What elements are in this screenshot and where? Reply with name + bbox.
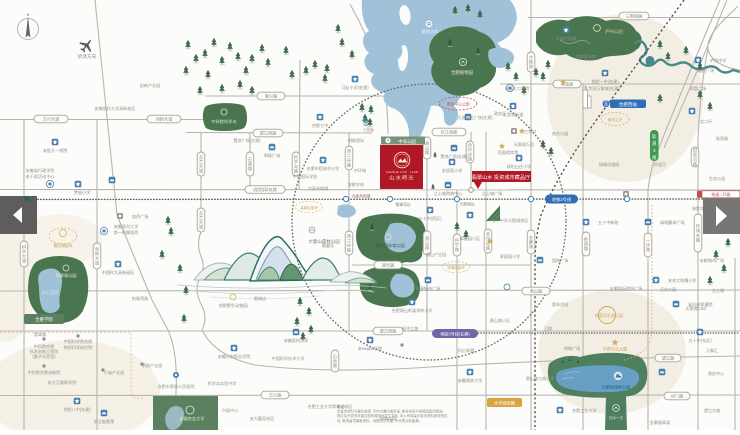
svg-text:明珠国际: 明珠国际 <box>348 137 364 143</box>
svg-text:祥源城市广场: 祥源城市广场 <box>416 285 441 291</box>
svg-text:大连万达广场(在建): 大连万达广场(在建) <box>457 114 493 120</box>
svg-text:山水時光: 山水時光 <box>389 174 415 182</box>
svg-text:置地广场(在建): 置地广场(在建) <box>440 153 468 159</box>
svg-text:庐阳中学: 庐阳中学 <box>710 57 726 63</box>
svg-text:高新区板块: 高新区板块 <box>300 205 318 210</box>
svg-text:力高共和城: 力高共和城 <box>352 194 371 199</box>
svg-text:万象汇: 万象汇 <box>706 347 718 353</box>
svg-text:科学岛实验中学: 科学岛实验中学 <box>208 380 237 386</box>
svg-text:地铁2号线: 地铁2号线 <box>552 196 572 203</box>
svg-text:合肥西站: 合肥西站 <box>619 101 638 108</box>
svg-text:中科院合肥创新院: 中科院合肥创新院 <box>28 369 61 375</box>
svg-text:翡翠湖公园: 翡翠湖公园 <box>56 272 77 279</box>
svg-text:融侨广场: 融侨广场 <box>698 67 714 73</box>
svg-text:潜山路与南二环: 潜山路与南二环 <box>526 375 555 381</box>
svg-text:柏堰湾路: 柏堰湾路 <box>132 295 148 301</box>
svg-text:备注:: 备注: <box>337 404 345 409</box>
svg-text:安医大一附院: 安医大一附院 <box>43 147 68 153</box>
svg-text:大学城商圈: 大学城商圈 <box>494 400 515 407</box>
svg-text:梦园小学: 梦园小学 <box>74 189 90 195</box>
svg-text:黄山路: 黄山路 <box>530 288 543 295</box>
svg-text:本宣传资料为要约邀请, 不作为要约或承诺, 相关内容不排除因: 本宣传资料为要约邀请, 不作为要约或承诺, 相关内容不排除因政府规划、 <box>337 409 446 414</box>
svg-text:机场方向: 机场方向 <box>78 53 97 60</box>
svg-text:(量子实验室): (量子实验室) <box>32 353 56 359</box>
svg-text:四里河生态公园: 四里河生态公园 <box>595 312 623 318</box>
svg-text:杏花公园: 杏花公园 <box>552 130 568 136</box>
svg-text:安居苑小学: 安居苑小学 <box>442 167 462 173</box>
svg-text:中国科学院合肥: 中国科学院合肥 <box>64 338 93 344</box>
svg-text:之心城广场: 之心城广场 <box>482 190 502 196</box>
svg-text:合肥一中(在建): 合肥一中(在建) <box>591 78 619 84</box>
svg-text:(规划)彩虹路: (规划)彩虹路 <box>253 186 278 193</box>
svg-text:方兴大道: 方兴大道 <box>43 116 61 123</box>
svg-text:天鹅湖万达: 天鹅湖万达 <box>514 141 534 147</box>
svg-text:财富广场: 财富广场 <box>690 85 706 91</box>
svg-text:老干部活动中心: 老干部活动中心 <box>26 173 55 179</box>
svg-text:中科院科学岛: 中科院科学岛 <box>211 118 236 125</box>
svg-text:翡翠山水 投资城市藏品厅: 翡翠山水 投资城市藏品厅 <box>472 173 531 181</box>
svg-text:合肥工业大学: 合肥工业大学 <box>572 407 597 413</box>
svg-text:安医大二附院: 安医大二附院 <box>505 85 530 91</box>
svg-text:黄山路小区: 黄山路小区 <box>490 317 510 323</box>
svg-text:合肥工业大学翡翠湖校区: 合肥工业大学翡翠湖校区 <box>307 403 352 409</box>
svg-text:创新大道: 创新大道 <box>156 116 174 123</box>
svg-text:望江路: 望江路 <box>662 355 675 362</box>
svg-text:蜀峰湾站: 蜀峰湾站 <box>395 202 410 207</box>
svg-text:望江西路: 望江西路 <box>260 130 278 137</box>
svg-text:安粮学府: 安粮学府 <box>348 181 364 187</box>
svg-text:兴园中心: 兴园中心 <box>222 407 238 413</box>
svg-text:奥林花园: 奥林花园 <box>552 301 568 307</box>
svg-text:创新产业园: 创新产业园 <box>140 82 160 88</box>
svg-text:安медиа学院: 安медиа学院 <box>358 345 382 351</box>
svg-text:庐州公园: 庐州公园 <box>605 28 623 35</box>
svg-text:政务区: 政务区 <box>494 110 506 116</box>
svg-text:望江东路: 望江东路 <box>704 407 720 413</box>
svg-text:天鹅湖站: 天鹅湖站 <box>459 202 474 207</box>
svg-text:望江西路: 望江西路 <box>380 328 398 335</box>
svg-text:规定及开发商未能控制的原因而发生变化, 本公司保留对宣传资料: 规定及开发商未能控制的原因而发生变化, 本公司保留对宣传资料修改的权 <box>337 413 448 418</box>
svg-text:绿地赢海广场: 绿地赢海广场 <box>660 219 685 225</box>
svg-text:复兴路: 复兴路 <box>265 93 278 100</box>
svg-text:合肥学院: 合肥学院 <box>35 316 53 323</box>
svg-text:汤王温泉: 汤王温泉 <box>42 289 60 296</box>
svg-text:北二环: 北二环 <box>700 118 712 124</box>
svg-text:轨: 轨 <box>652 133 657 140</box>
svg-text:琥珀山庄小学: 琥珀山庄小学 <box>507 163 532 169</box>
svg-text:五十中学天鹅湖校区: 五十中学天鹅湖校区 <box>492 217 529 223</box>
svg-text:临泉路: 临泉路 <box>716 135 728 141</box>
svg-text:道: 道 <box>652 140 657 147</box>
svg-text:安粮城市广场: 安粮城市广场 <box>700 257 725 263</box>
svg-text:奥体中心公园: 奥体中心公园 <box>447 102 470 107</box>
svg-text:百花公园: 百花公园 <box>660 286 676 292</box>
svg-text:线: 线 <box>652 154 657 160</box>
svg-text:中国科大高新园区: 中国科大高新园区 <box>102 269 135 275</box>
svg-text:三孝口: 三孝口 <box>524 128 536 134</box>
svg-text:中加国际学校: 中加国际学校 <box>293 173 318 179</box>
svg-text:翠庭园小学: 翠庭园小学 <box>500 253 520 259</box>
svg-text:大房郢水库: 大房郢水库 <box>576 53 596 59</box>
svg-text:天鹅湖CBD: 天鹅湖CBD <box>686 305 707 311</box>
svg-text:雷麻店: 雷麻店 <box>254 295 266 301</box>
svg-text:利, 敬请留意最新资料。地图为示意图, 不代表实际距离。: 利, 敬请留意最新资料。地图为示意图, 不代表实际距离。 <box>337 418 422 423</box>
svg-text:蜀峰湾体育公园: 蜀峰湾体育公园 <box>375 242 404 249</box>
svg-text:中国科学技术大学: 中国科学技术大学 <box>272 355 305 361</box>
svg-text:合肥七中: 合肥七中 <box>312 122 328 128</box>
svg-text:祖冲之路: 祖冲之路 <box>402 325 418 331</box>
svg-text:安徽医科大学高新校区: 安徽医科大学高新校区 <box>95 105 136 111</box>
svg-text:SHANHE LIVE · LAKE: SHANHE LIVE · LAKE <box>386 170 418 174</box>
svg-text:安大磬苑校区: 安大磬苑校区 <box>250 415 275 421</box>
svg-text:小庙产业园: 小庙产业园 <box>104 369 124 375</box>
svg-text:之心城购物中心: 之心城购物中心 <box>434 190 463 196</box>
svg-text:安徽农业大学: 安徽农业大学 <box>179 415 204 422</box>
svg-text:五十中(西区): 五十中(西区) <box>418 215 442 221</box>
svg-text:董铺水库: 董铺水库 <box>422 28 439 35</box>
svg-text:合肥市稻香村小学: 合肥市稻香村小学 <box>307 165 340 171</box>
svg-text:长江西路: 长江西路 <box>441 129 459 136</box>
svg-text:安农大附属小学: 安农大附属小学 <box>668 277 697 283</box>
svg-text:三国城路: 三国城路 <box>626 13 644 20</box>
svg-text:安徽建筑大学: 安徽建筑大学 <box>458 377 483 383</box>
svg-text:合肥市第四人民医院: 合肥市第四人民医院 <box>158 383 195 389</box>
svg-text:安徽公安职业学院: 安徽公安职业学院 <box>218 353 251 359</box>
svg-text:之心城: 之心城 <box>712 287 724 293</box>
svg-text:五十中(东区): 五十中(东区) <box>688 337 712 343</box>
svg-text:第一附属医院: 第一附属医院 <box>114 229 139 235</box>
svg-text:方兴路: 方兴路 <box>269 392 282 399</box>
svg-text:砂之船奥莱: 砂之船奥莱 <box>94 418 114 424</box>
svg-text:绿城玫瑰园: 绿城玫瑰园 <box>599 161 619 167</box>
svg-text:中国书法大厦: 中国书法大厦 <box>603 346 628 352</box>
svg-text:地铁3号线(在建): 地铁3号线(在建) <box>440 331 470 337</box>
svg-text:四里河: 四里河 <box>654 161 666 167</box>
svg-text:明珠产业园: 明珠产业园 <box>142 362 162 368</box>
svg-text:合肥野生动物园: 合肥野生动物园 <box>218 302 247 309</box>
svg-text:物质科学研究院: 物质科学研究院 <box>64 344 93 350</box>
svg-text:金寨路高架: 金寨路高架 <box>650 419 670 425</box>
svg-text:力高共和城: 力高共和城 <box>308 185 328 191</box>
svg-text:合肥两山听溪学府小学: 合肥两山听溪学府小学 <box>392 307 433 313</box>
svg-text:安大互联网学院: 安大互联网学院 <box>48 379 77 385</box>
svg-text:北城世纪城: 北城世纪城 <box>556 35 576 41</box>
svg-text:祁门路: 祁门路 <box>671 393 684 400</box>
svg-text:安徽省行政学院: 安徽省行政学院 <box>26 167 55 173</box>
svg-text:中环城: 中环城 <box>354 167 366 173</box>
svg-text:城市之光: 城市之光 <box>608 117 623 122</box>
svg-text:稻香楼宾馆: 稻香楼宾馆 <box>498 149 518 155</box>
svg-text:置地广场(在建): 置地广场(在建) <box>233 137 261 143</box>
svg-text:蜀西湖板块: 蜀西湖板块 <box>54 243 73 248</box>
svg-text:天鹅湖湿地公园: 天鹅湖湿地公园 <box>602 384 631 390</box>
svg-text:安徽医科大学: 安徽医科大学 <box>114 223 139 229</box>
svg-text:十里庙: 十里庙 <box>362 127 374 132</box>
svg-text:蜀麓苑: 蜀麓苑 <box>322 242 334 248</box>
svg-text:科企联盟: 科企联盟 <box>458 347 474 353</box>
svg-text:卫岗: 卫岗 <box>544 326 552 331</box>
svg-text:安徽国际财贸广场: 安徽国际财贸广场 <box>610 285 643 291</box>
svg-text:华润万象城(在建): 华润万象城(在建) <box>588 85 620 91</box>
svg-text:明珠广场: 明珠广场 <box>564 345 580 351</box>
svg-text:明珠广场: 明珠广场 <box>264 152 280 158</box>
svg-text:翡翠路: 翡翠路 <box>34 331 46 337</box>
svg-text:习友小学(在建): 习友小学(在建) <box>341 84 369 90</box>
svg-text:翠庭园小区: 翠庭园小区 <box>460 235 480 241</box>
svg-text:国购广场: 国购广场 <box>552 257 568 263</box>
svg-text:湖光路: 湖光路 <box>382 262 395 269</box>
svg-text:合肥植物园: 合肥植物园 <box>451 69 474 76</box>
svg-text:中海公园: 中海公园 <box>398 138 416 145</box>
svg-text:生态公园: 生态公园 <box>709 175 725 181</box>
svg-text:蜀山产业园: 蜀山产业园 <box>426 251 446 257</box>
svg-text:合肥八中(在建): 合肥八中(在建) <box>63 406 91 412</box>
svg-text:畅通二环路: 畅通二环路 <box>712 192 731 197</box>
svg-text:在水一方: 在水一方 <box>609 415 624 420</box>
svg-text:政务中心: 政务中心 <box>708 370 724 376</box>
svg-text:祥源城板块: 祥源城板块 <box>447 265 465 270</box>
svg-text:加侨广场: 加侨广场 <box>132 213 148 219</box>
svg-text:五十中新校: 五十中新校 <box>598 219 618 225</box>
svg-text:安徽医科大学: 安徽医科大学 <box>284 337 309 343</box>
